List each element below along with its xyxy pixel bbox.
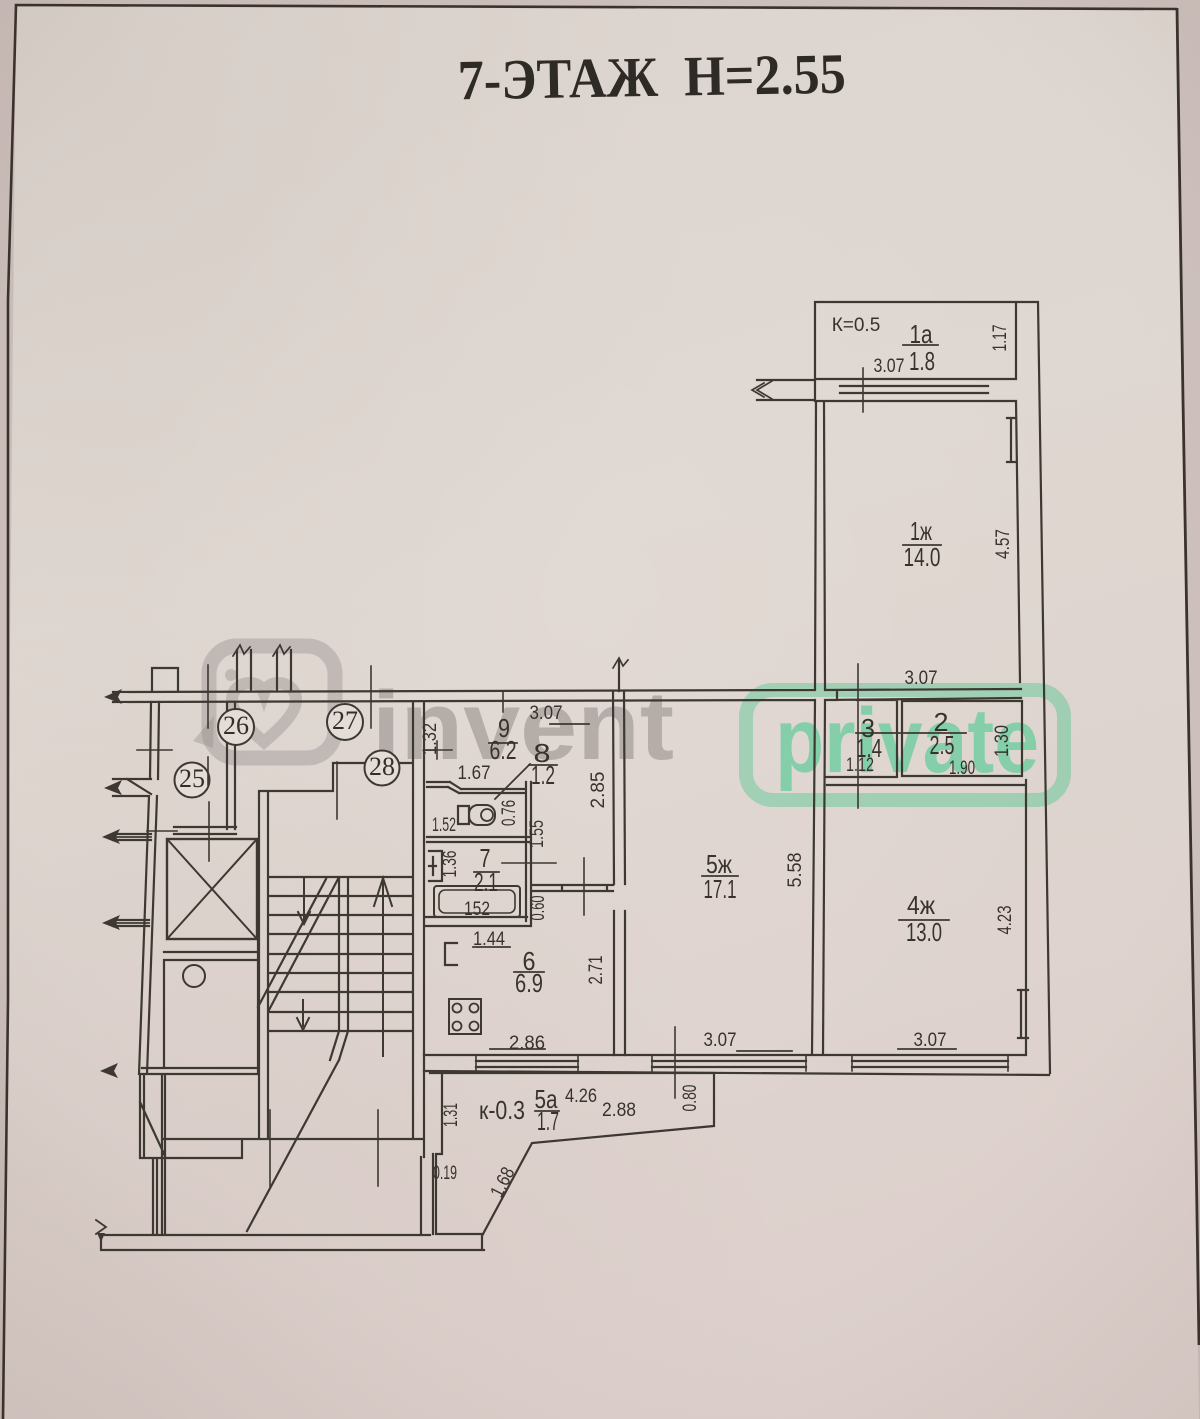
svg-text:3.07: 3.07 — [874, 356, 905, 377]
svg-text:2.71: 2.71 — [586, 956, 607, 985]
svg-text:2.85: 2.85 — [588, 772, 609, 809]
svg-text:13.0: 13.0 — [906, 917, 942, 947]
svg-text:26: 26 — [223, 711, 249, 740]
svg-text:2.1: 2.1 — [474, 867, 498, 897]
svg-text:7-ЭТАЖ Н=2.55: 7-ЭТАЖ Н=2.55 — [457, 43, 846, 113]
svg-text:3.07: 3.07 — [530, 703, 563, 724]
svg-text:3.07: 3.07 — [914, 1030, 947, 1051]
svg-text:6.9: 6.9 — [515, 968, 543, 998]
svg-text:1.12: 1.12 — [846, 755, 874, 776]
svg-text:25: 25 — [179, 764, 205, 793]
svg-text:4ж: 4ж — [907, 890, 936, 920]
svg-text:1.90: 1.90 — [949, 758, 975, 779]
svg-text:27: 27 — [332, 706, 358, 735]
svg-text:К=0.5: К=0.5 — [832, 315, 881, 336]
svg-text:0.19: 0.19 — [433, 1163, 457, 1184]
svg-text:1.31: 1.31 — [441, 1103, 462, 1127]
svg-text:14.0: 14.0 — [904, 542, 941, 572]
svg-text:4.57: 4.57 — [993, 529, 1014, 559]
svg-text:1.67: 1.67 — [458, 763, 491, 784]
svg-text:152: 152 — [464, 899, 490, 920]
svg-text:1.17: 1.17 — [990, 325, 1011, 352]
svg-text:1.52: 1.52 — [432, 815, 456, 836]
svg-text:1а: 1а — [910, 319, 933, 349]
svg-text:invent: invent — [372, 671, 674, 780]
svg-text:6.2: 6.2 — [490, 735, 517, 765]
svg-text:1.30: 1.30 — [992, 725, 1013, 757]
svg-text:0.60: 0.60 — [528, 896, 549, 921]
svg-text:0.80: 0.80 — [680, 1085, 701, 1112]
svg-text:3.07: 3.07 — [905, 668, 938, 689]
svg-text:4.23: 4.23 — [995, 906, 1016, 935]
svg-text:28: 28 — [369, 752, 395, 781]
svg-text:4.26: 4.26 — [565, 1086, 597, 1107]
svg-text:5.58: 5.58 — [785, 853, 806, 888]
svg-text:3.07: 3.07 — [704, 1030, 737, 1051]
svg-text:2.88: 2.88 — [602, 1100, 636, 1121]
svg-text:0.76: 0.76 — [499, 800, 520, 826]
svg-text:1.44: 1.44 — [473, 929, 505, 950]
svg-text:17.1: 17.1 — [704, 874, 737, 904]
svg-text:2.86: 2.86 — [509, 1033, 545, 1054]
svg-text:1.2: 1.2 — [531, 760, 555, 790]
svg-text:к-0.3: к-0.3 — [479, 1095, 525, 1125]
svg-text:1.32: 1.32 — [420, 723, 441, 755]
svg-text:1.8: 1.8 — [909, 346, 935, 376]
svg-text:2.5: 2.5 — [930, 730, 955, 760]
svg-text:1.36: 1.36 — [440, 851, 461, 878]
svg-text:1.55: 1.55 — [527, 820, 548, 848]
svg-text:1.7: 1.7 — [537, 1106, 559, 1136]
